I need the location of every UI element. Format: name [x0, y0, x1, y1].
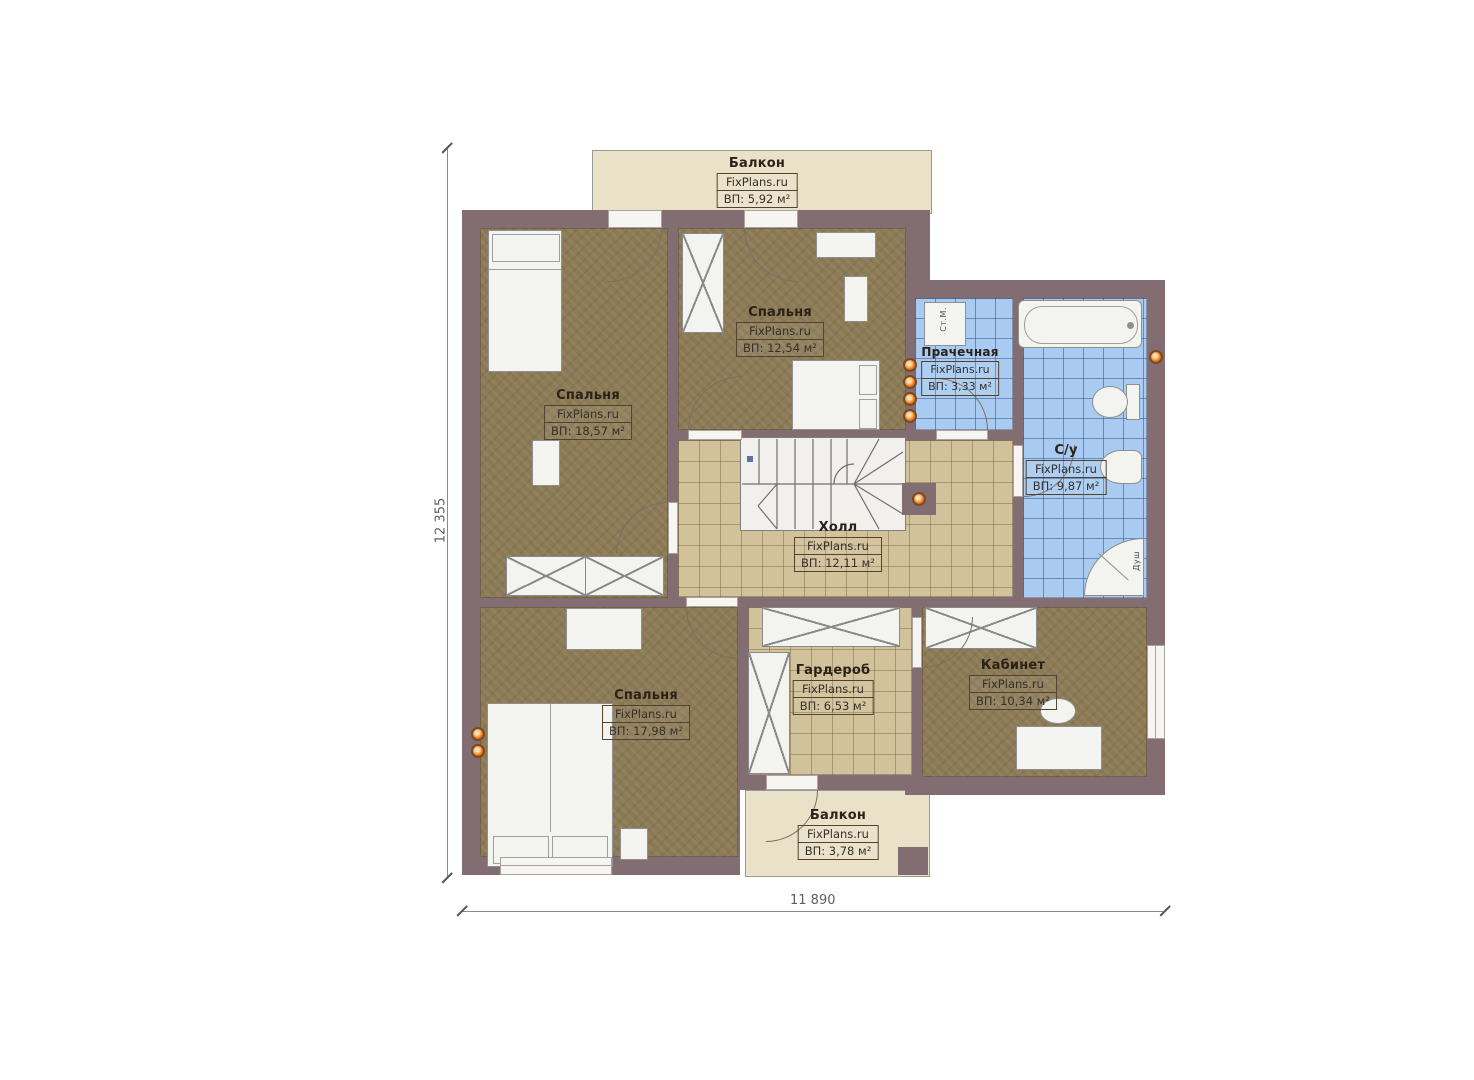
- room-label-bedroom-top-left: Спальня FixPlans.ru ВП: 18,57 м²: [544, 388, 632, 440]
- blanket-fold: [489, 269, 561, 270]
- pillow: [492, 234, 560, 262]
- window: [1147, 645, 1165, 739]
- washing-machine: Ст.М.: [924, 302, 966, 346]
- room-label-bathroom: С/у FixPlans.ru ВП: 9,87 м²: [1026, 443, 1107, 495]
- nightstand: [532, 440, 560, 486]
- brand-label: FixPlans.ru: [794, 537, 882, 555]
- room-name: Кабинет: [969, 658, 1057, 673]
- toilet-bowl: [1092, 386, 1128, 418]
- wardrobe-cabinet: [585, 556, 664, 596]
- room-name: С/у: [1026, 443, 1107, 458]
- room-area: ВП: 3,78 м²: [798, 842, 879, 860]
- desk: [816, 232, 876, 258]
- floor-plan-canvas: Ст.М. Душ: [0, 0, 1474, 1080]
- bed-single-top-left: [488, 230, 562, 372]
- brand-label: FixPlans.ru: [1026, 460, 1107, 478]
- wardrobe-cabinet: [506, 556, 586, 596]
- toilet-tank: [1126, 384, 1140, 420]
- vent-marker: [471, 744, 485, 758]
- room-name: Балкон: [717, 156, 798, 171]
- bed-top-middle: [792, 360, 880, 430]
- door-opening: [936, 430, 988, 440]
- room-label-balcony-bottom: Балкон FixPlans.ru ВП: 3,78 м²: [798, 808, 879, 860]
- bed-crease: [550, 704, 551, 832]
- room-name: Прачечная: [921, 345, 999, 359]
- door-opening: [688, 430, 742, 440]
- room-name: Балкон: [798, 808, 879, 823]
- dimension-label-height: 12 355: [433, 498, 448, 544]
- room-label-bedroom-top-middle: Спальня FixPlans.ru ВП: 12,54 м²: [736, 305, 824, 357]
- dimension-line-horizontal: [462, 911, 1165, 912]
- brand-label: FixPlans.ru: [798, 825, 879, 843]
- door-opening: [912, 617, 922, 668]
- room-area: ВП: 10,34 м²: [969, 692, 1057, 710]
- brand-label: FixPlans.ru: [793, 680, 874, 698]
- window: [500, 857, 612, 875]
- door-opening: [686, 597, 738, 607]
- room-name: Холл: [794, 520, 882, 535]
- room-area: ВП: 6,53 м²: [793, 697, 874, 715]
- room-label-laundry: Прачечная FixPlans.ru ВП: 3,33 м²: [921, 345, 999, 396]
- nightstand: [620, 828, 648, 860]
- room-area: ВП: 5,92 м²: [717, 190, 798, 208]
- window-frame-line: [1155, 645, 1156, 739]
- room-area: ВП: 3,33 м²: [921, 378, 999, 396]
- room-area: ВП: 12,11 м²: [794, 554, 882, 572]
- room-label-wardrobe: Гардероб FixPlans.ru ВП: 6,53 м²: [793, 663, 874, 715]
- room-area: ВП: 9,87 м²: [1026, 477, 1107, 495]
- room-name: Спальня: [544, 388, 632, 403]
- wardrobe-cabinet: [748, 652, 790, 774]
- vent-marker: [903, 375, 917, 389]
- brand-label: FixPlans.ru: [921, 361, 999, 379]
- office-desk: [1016, 726, 1102, 770]
- window-frame-line: [500, 865, 612, 866]
- shower-door-line: [1098, 553, 1128, 581]
- brand-label: FixPlans.ru: [544, 405, 632, 423]
- vent-marker: [471, 727, 485, 741]
- washing-machine-label: Ст.М.: [939, 307, 948, 332]
- door-opening: [608, 210, 662, 228]
- wardrobe-cabinet: [682, 233, 724, 333]
- staircase: [740, 437, 906, 531]
- room-name: Гардероб: [793, 663, 874, 678]
- room-name: Спальня: [602, 688, 690, 703]
- shower-label: Душ: [1132, 551, 1141, 571]
- door-opening: [1013, 445, 1023, 497]
- wardrobe-cabinet: [762, 607, 900, 647]
- vent-marker: [903, 409, 917, 423]
- room-label-balcony-top: Балкон FixPlans.ru ВП: 5,92 м²: [717, 156, 798, 208]
- wall-balcony-pier: [898, 847, 928, 875]
- room-area: ВП: 17,98 м²: [602, 722, 690, 740]
- bed-double-bottom-left: [487, 703, 613, 867]
- vent-marker: [912, 492, 926, 506]
- room-name: Спальня: [736, 305, 824, 320]
- brand-label: FixPlans.ru: [602, 705, 690, 723]
- pillow: [859, 365, 877, 395]
- door-opening: [668, 502, 678, 554]
- pillow: [859, 399, 877, 429]
- brand-label: FixPlans.ru: [736, 322, 824, 340]
- room-area: ВП: 12,54 м²: [736, 339, 824, 357]
- bathtub-basin: [1024, 306, 1138, 344]
- room-area: ВП: 18,57 м²: [544, 422, 632, 440]
- vent-marker: [1149, 350, 1163, 364]
- bathtub-drain: [1127, 322, 1134, 329]
- bathtub: [1018, 300, 1142, 348]
- desk: [566, 608, 642, 650]
- vent-marker: [903, 392, 917, 406]
- door-opening: [766, 775, 818, 790]
- dimension-label-width: 11 890: [790, 893, 836, 908]
- room-label-hall: Холл FixPlans.ru ВП: 12,11 м²: [794, 520, 882, 572]
- vent-marker: [903, 358, 917, 372]
- door-opening: [744, 210, 798, 228]
- nightstand: [844, 276, 868, 322]
- brand-label: FixPlans.ru: [969, 675, 1057, 693]
- room-label-office: Кабинет FixPlans.ru ВП: 10,34 м²: [969, 658, 1057, 710]
- brand-label: FixPlans.ru: [717, 173, 798, 191]
- room-label-bedroom-bottom-left: Спальня FixPlans.ru ВП: 17,98 м²: [602, 688, 690, 740]
